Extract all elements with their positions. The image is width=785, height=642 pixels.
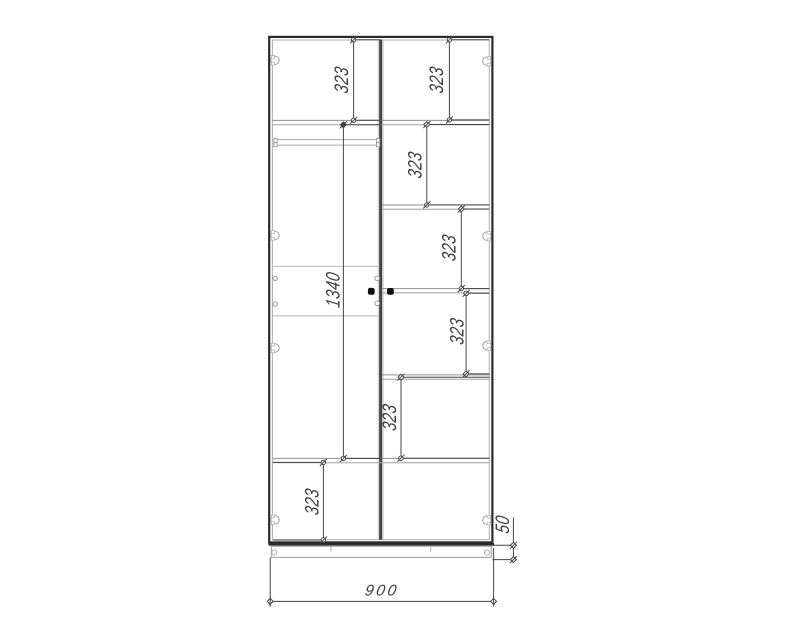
svg-text:323: 323 (445, 316, 467, 346)
svg-text:50: 50 (491, 514, 513, 535)
svg-text:323: 323 (378, 402, 400, 432)
svg-text:323: 323 (438, 233, 460, 263)
svg-text:323: 323 (425, 65, 447, 95)
svg-text:323: 323 (404, 150, 426, 180)
svg-text:323: 323 (330, 65, 352, 95)
svg-text:1340: 1340 (322, 270, 344, 309)
svg-text:900: 900 (364, 583, 401, 600)
svg-text:323: 323 (301, 487, 323, 517)
